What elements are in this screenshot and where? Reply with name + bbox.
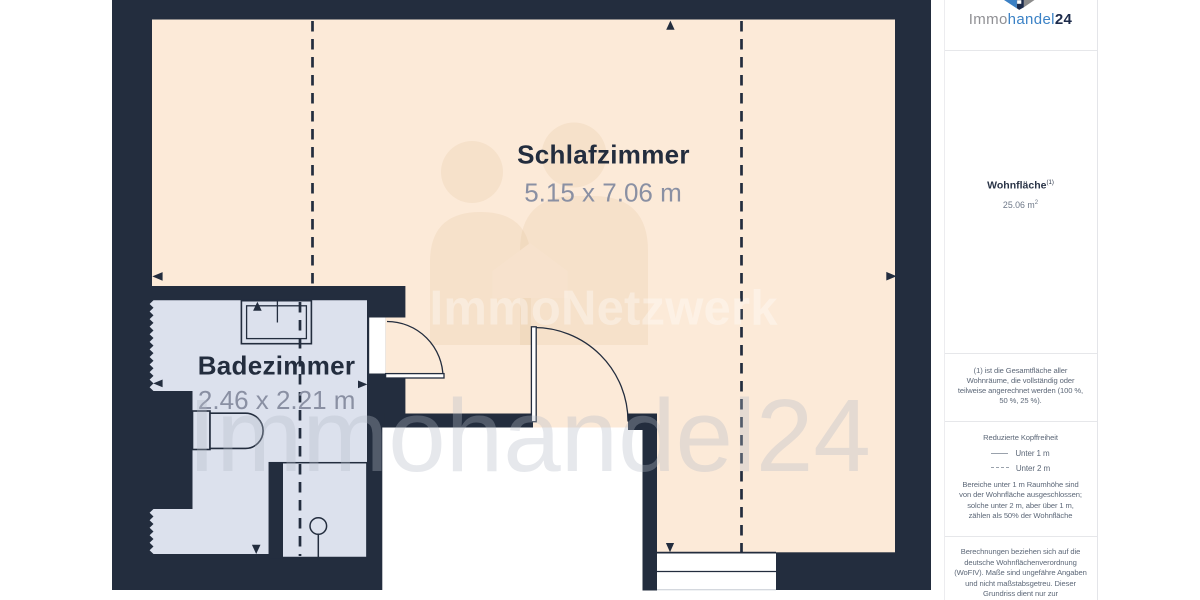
- svg-text:Badezimmer: Badezimmer: [198, 350, 356, 380]
- svg-text:Schlafzimmer: Schlafzimmer: [517, 140, 690, 170]
- svg-text:ImmoNetzwerk: ImmoNetzwerk: [430, 282, 779, 336]
- svg-text:Immohandel24: Immohandel24: [188, 377, 871, 493]
- svg-text:5.15 x 7.06 m: 5.15 x 7.06 m: [524, 178, 682, 208]
